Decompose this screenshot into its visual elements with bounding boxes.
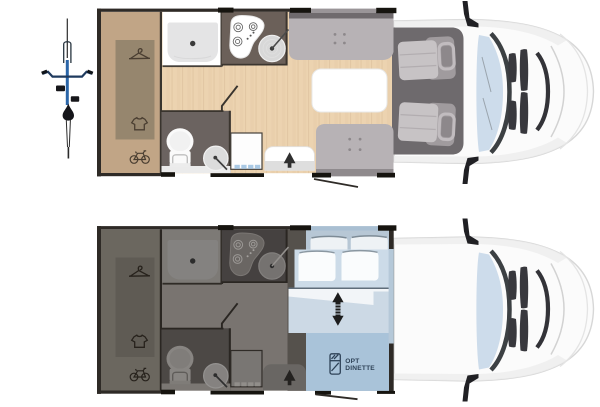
svg-text:OPT: OPT xyxy=(345,358,359,365)
svg-text:DINETTE: DINETTE xyxy=(345,365,375,372)
